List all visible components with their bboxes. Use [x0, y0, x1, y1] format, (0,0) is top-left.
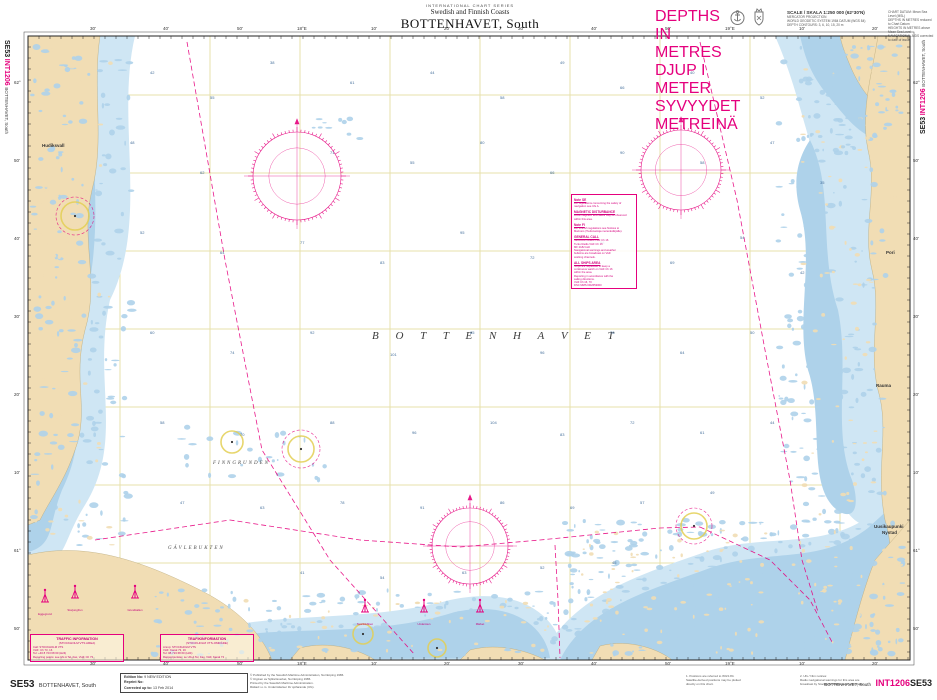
- beacon-label: Eggegrund: [33, 612, 57, 616]
- beacon-label: Svartklubben: [353, 622, 377, 626]
- note-line: DSC MMSI 002653000: [574, 284, 634, 287]
- graticule-label-right: 62°: [913, 80, 920, 85]
- beacon-label: Storjungfrun: [63, 608, 87, 612]
- edge-right-id: SE53: [920, 117, 927, 134]
- graticule-label-bottom: 30': [518, 661, 524, 666]
- edition-row: Corrected up to: 13 Feb 2014: [124, 686, 244, 691]
- graticule-label-left: 62°: [14, 80, 21, 85]
- chart-title: BOTTENHAVET, South: [280, 16, 660, 32]
- note-line: navigation see Ufs A.: [574, 205, 634, 208]
- sounding: 63: [462, 570, 466, 575]
- sounding: 44: [770, 420, 774, 425]
- graticule-label-bottom: 20': [872, 661, 878, 666]
- sounding: 54: [380, 575, 384, 580]
- sounding: 63: [260, 505, 264, 510]
- edition-row-label: Edition No:: [124, 675, 143, 679]
- graticule-label-left: 50': [14, 626, 20, 631]
- sounding: 90: [620, 150, 624, 155]
- sounding: 71: [330, 150, 334, 155]
- graticule-label-bottom: 10': [799, 661, 805, 666]
- beacon-symbol: Eggegrund: [33, 588, 57, 616]
- graticule-label-left: 10': [14, 470, 20, 475]
- sounding: 95: [460, 230, 464, 235]
- sounding: 41: [300, 570, 304, 575]
- map-label: Rauma: [876, 383, 891, 388]
- sounding: 96: [412, 430, 416, 435]
- sounding: 52: [540, 565, 544, 570]
- graticule-label-bottom: 20': [444, 661, 450, 666]
- graticule-label-left: 40': [14, 236, 20, 241]
- sounding: 101: [390, 352, 397, 357]
- sounding: 83: [560, 432, 564, 437]
- graticule-label-right: 30': [913, 314, 919, 319]
- sounding: 66: [550, 170, 554, 175]
- bottom-chart-number: SE53: [910, 678, 932, 688]
- depths-note-line: SYVYYDET METREINÄ: [655, 98, 715, 134]
- graticule-label-left: 20': [14, 392, 20, 397]
- datum-notes: CHART DATUM: Mean Sea Level (MSL)DEPTHS …: [888, 10, 934, 42]
- edge-right-title: BOTTENHAVET, South: [921, 40, 926, 87]
- chart-coasts-line: Swedish and Finnish Coasts: [280, 8, 660, 16]
- traffic-info-box: TRAFIKINFORMATION(STOCKHOLM VTS-OMRÅDE)A…: [160, 634, 254, 662]
- depths-note: DEPTHS IN METRESDJUP I METERSYVYYDET MET…: [655, 8, 715, 134]
- traffic-box-row: Reporting points: see Ufs A Tel, Fax, VH…: [33, 656, 121, 659]
- sounding: 50: [750, 330, 754, 335]
- graticule-label-right: 50': [913, 626, 919, 631]
- graticule-label-right: 61°: [913, 548, 920, 553]
- sounding: 70: [240, 432, 244, 437]
- sounding: 60: [150, 330, 154, 335]
- sounding: 49: [560, 60, 564, 65]
- sounding: 104: [490, 420, 497, 425]
- sounding: 58: [700, 160, 704, 165]
- traffic-box-row: Rapportpunkter: se Ufs A Tel, Fax, VHF, …: [163, 656, 251, 659]
- graticule-label-top: 40': [163, 26, 169, 31]
- sounding: 69: [670, 260, 674, 265]
- edge-label-left: SE53 INT1206 BOTTENHAVET, South: [3, 40, 10, 134]
- sea-name-bottenhavet: B O T T E N H A V E T: [372, 330, 621, 342]
- sounding: 86: [500, 500, 504, 505]
- sounding: 88: [330, 420, 334, 425]
- sounding: 47: [770, 140, 774, 145]
- sounding: 35: [820, 180, 824, 185]
- graticule-label-bottom: 18°E: [297, 661, 307, 666]
- note-line: within this area.: [574, 218, 634, 221]
- graticule-label-left: 30': [14, 314, 20, 319]
- graticule-label-bottom: 40': [591, 661, 597, 666]
- beacon-symbol: Storjungfrun: [63, 584, 87, 612]
- bottom-chart-id: SE53: [10, 679, 34, 690]
- traffic-box-subtitle: (STOCKHOLM VTS AREA): [33, 641, 121, 645]
- sounding: 47: [180, 500, 184, 505]
- graticule-label-right: 20': [913, 392, 919, 397]
- sounding: 69: [570, 505, 574, 510]
- sounding: 64: [220, 250, 224, 255]
- sounding: 44: [430, 70, 434, 75]
- depths-note-line: DJUP I METER: [655, 62, 715, 98]
- sounding: 55: [210, 95, 214, 100]
- beacon-tower-icon: [419, 598, 429, 616]
- graticule-label-right: 50': [913, 158, 919, 163]
- note-line: Mariners (Tiedonantoja merenkulkijoille)…: [574, 230, 634, 233]
- graticule-label-right: 40': [913, 236, 919, 241]
- graticule-label-bottom: 10': [371, 661, 377, 666]
- sounding: 52: [760, 95, 764, 100]
- sounding: 57: [640, 500, 644, 505]
- beacon-symbol: Grundkallen: [123, 584, 147, 612]
- nautical-chart-page: B O T T E N H A V E TFINNGRUNDENGÄVLEBUK…: [0, 0, 937, 700]
- beacon-tower-icon: [130, 584, 140, 602]
- chart-notes-block: Note SEFor regulations concerning the sa…: [571, 194, 637, 289]
- sounding: 42: [800, 270, 804, 275]
- map-label: Hudiksvall: [42, 143, 65, 148]
- sounding: 74: [230, 350, 234, 355]
- beacon-tower-icon: [475, 598, 485, 616]
- beacon-symbol: Understen: [412, 598, 436, 626]
- edition-row-label: Reprint No:: [124, 680, 144, 684]
- publisher-notes: © Published by the Swedish Maritime Admi…: [250, 674, 430, 690]
- finnish-crest-icon: [752, 4, 766, 33]
- scale-notes: MERCATOR PROJECTIONWORLD GEODETIC SYSTEM…: [787, 15, 882, 27]
- map-label: Uusikaupunki: [874, 524, 904, 529]
- sounding: 72: [630, 420, 634, 425]
- bottom-int-number: INT1206: [875, 678, 910, 688]
- beacon-symbol: Svartklubben: [353, 598, 377, 626]
- sounding: 96: [540, 350, 544, 355]
- bottom-right-title: BOTTENHAVET, South: [824, 682, 871, 687]
- sounding: 91: [420, 505, 424, 510]
- sounding: 64: [680, 350, 684, 355]
- edge-label-right: SE53 INT1206 BOTTENHAVET, South: [920, 40, 927, 134]
- bottom-note-line: directly on this chart.: [686, 683, 796, 687]
- sounding: 78: [610, 330, 614, 335]
- scale-note-line: DEPTH CONTOURS: 3, 6, 10, 15, 20 m: [787, 23, 882, 27]
- bottom-chart-title: BOTTENHAVET, South: [39, 683, 96, 689]
- datum-note-line: CHART DATUM: Mean Sea Level (MSL): [888, 10, 934, 18]
- traffic-box-subtitle: (STOCKHOLM VTS-OMRÅDE): [163, 641, 251, 645]
- beacon-label: Märket: [468, 622, 492, 626]
- sounding: 62: [200, 170, 204, 175]
- map-label: Nystad: [882, 530, 897, 535]
- beacon-label: Understen: [412, 622, 436, 626]
- graticule-label-bottom: 19°E: [725, 661, 735, 666]
- beacon-tower-icon: [40, 588, 50, 606]
- edge-left-title: BOTTENHAVET, South: [4, 87, 9, 134]
- sma-emblem-icon: [730, 4, 745, 33]
- beacon-symbol: Märket: [468, 598, 492, 626]
- edge-left-int: INT1206: [3, 59, 10, 86]
- sounding: 83: [380, 260, 384, 265]
- graticule-label-top: 30': [90, 26, 96, 31]
- sounding: 72: [530, 255, 534, 260]
- sounding: 78: [340, 500, 344, 505]
- sounding: 42: [150, 70, 154, 75]
- graticule-label-right: 10': [913, 470, 919, 475]
- edition-row-label: Corrected up to:: [124, 686, 152, 690]
- depths-note-line: DEPTHS IN METRES: [655, 8, 715, 62]
- sounding: 92: [310, 330, 314, 335]
- datum-note-line: HEIGHTS IN METRES above Mean Sea Level: [888, 26, 934, 34]
- map-label: Pori: [886, 250, 895, 255]
- beacon-label: Grundkallen: [123, 608, 147, 612]
- traffic-info-box: TRAFFIC INFORMATION(STOCKHOLM VTS AREA)C…: [30, 634, 124, 662]
- sounding: 77: [300, 240, 304, 245]
- sounding: 54: [740, 235, 744, 240]
- map-label: FINNGRUNDEN: [213, 461, 270, 466]
- edge-right-int: INT1206: [920, 88, 927, 115]
- sounding: 58: [500, 95, 504, 100]
- sounding: 58: [160, 420, 164, 425]
- edition-box: Edition No: 9 NEW EDITIONReprint No: Cor…: [120, 673, 248, 693]
- note-line: working channels.: [574, 256, 634, 259]
- sounding: 52: [140, 230, 144, 235]
- graticule-label-top: 50': [237, 26, 243, 31]
- graticule-label-left: 61°: [14, 548, 21, 553]
- sounding: 80: [480, 140, 484, 145]
- graticule-label-left: 50': [14, 158, 20, 163]
- edge-left-id: SE53: [3, 40, 10, 57]
- sounding: 38: [270, 60, 274, 65]
- beacon-tower-icon: [360, 598, 370, 616]
- sounding: 85: [470, 330, 474, 335]
- sounding: 55: [410, 160, 414, 165]
- sounding: 48: [130, 140, 134, 145]
- sounding: 45: [612, 560, 616, 565]
- sounding: 61: [700, 430, 704, 435]
- beacon-tower-icon: [70, 584, 80, 602]
- graticule-label-bottom: 50': [665, 661, 671, 666]
- map-label: GÄVLEBUKTEN: [168, 546, 225, 551]
- chart-text-layer: B O T T E N H A V E TFINNGRUNDENGÄVLEBUK…: [0, 0, 937, 700]
- datum-note-line: NAVIGATIONAL AIDS corrected to date of i…: [888, 34, 934, 42]
- sounding: 66: [620, 85, 624, 90]
- publisher-line: Rättad t.o.m. Underrättelser för sjöfara…: [250, 686, 430, 690]
- sounding: 61: [350, 80, 354, 85]
- datum-note-line: DEPTHS IN METRES reduced to Chart Datum: [888, 18, 934, 26]
- bottom-notes-a: 1. Positions are referred to WGS 84.Sate…: [686, 675, 796, 687]
- sounding: 49: [710, 490, 714, 495]
